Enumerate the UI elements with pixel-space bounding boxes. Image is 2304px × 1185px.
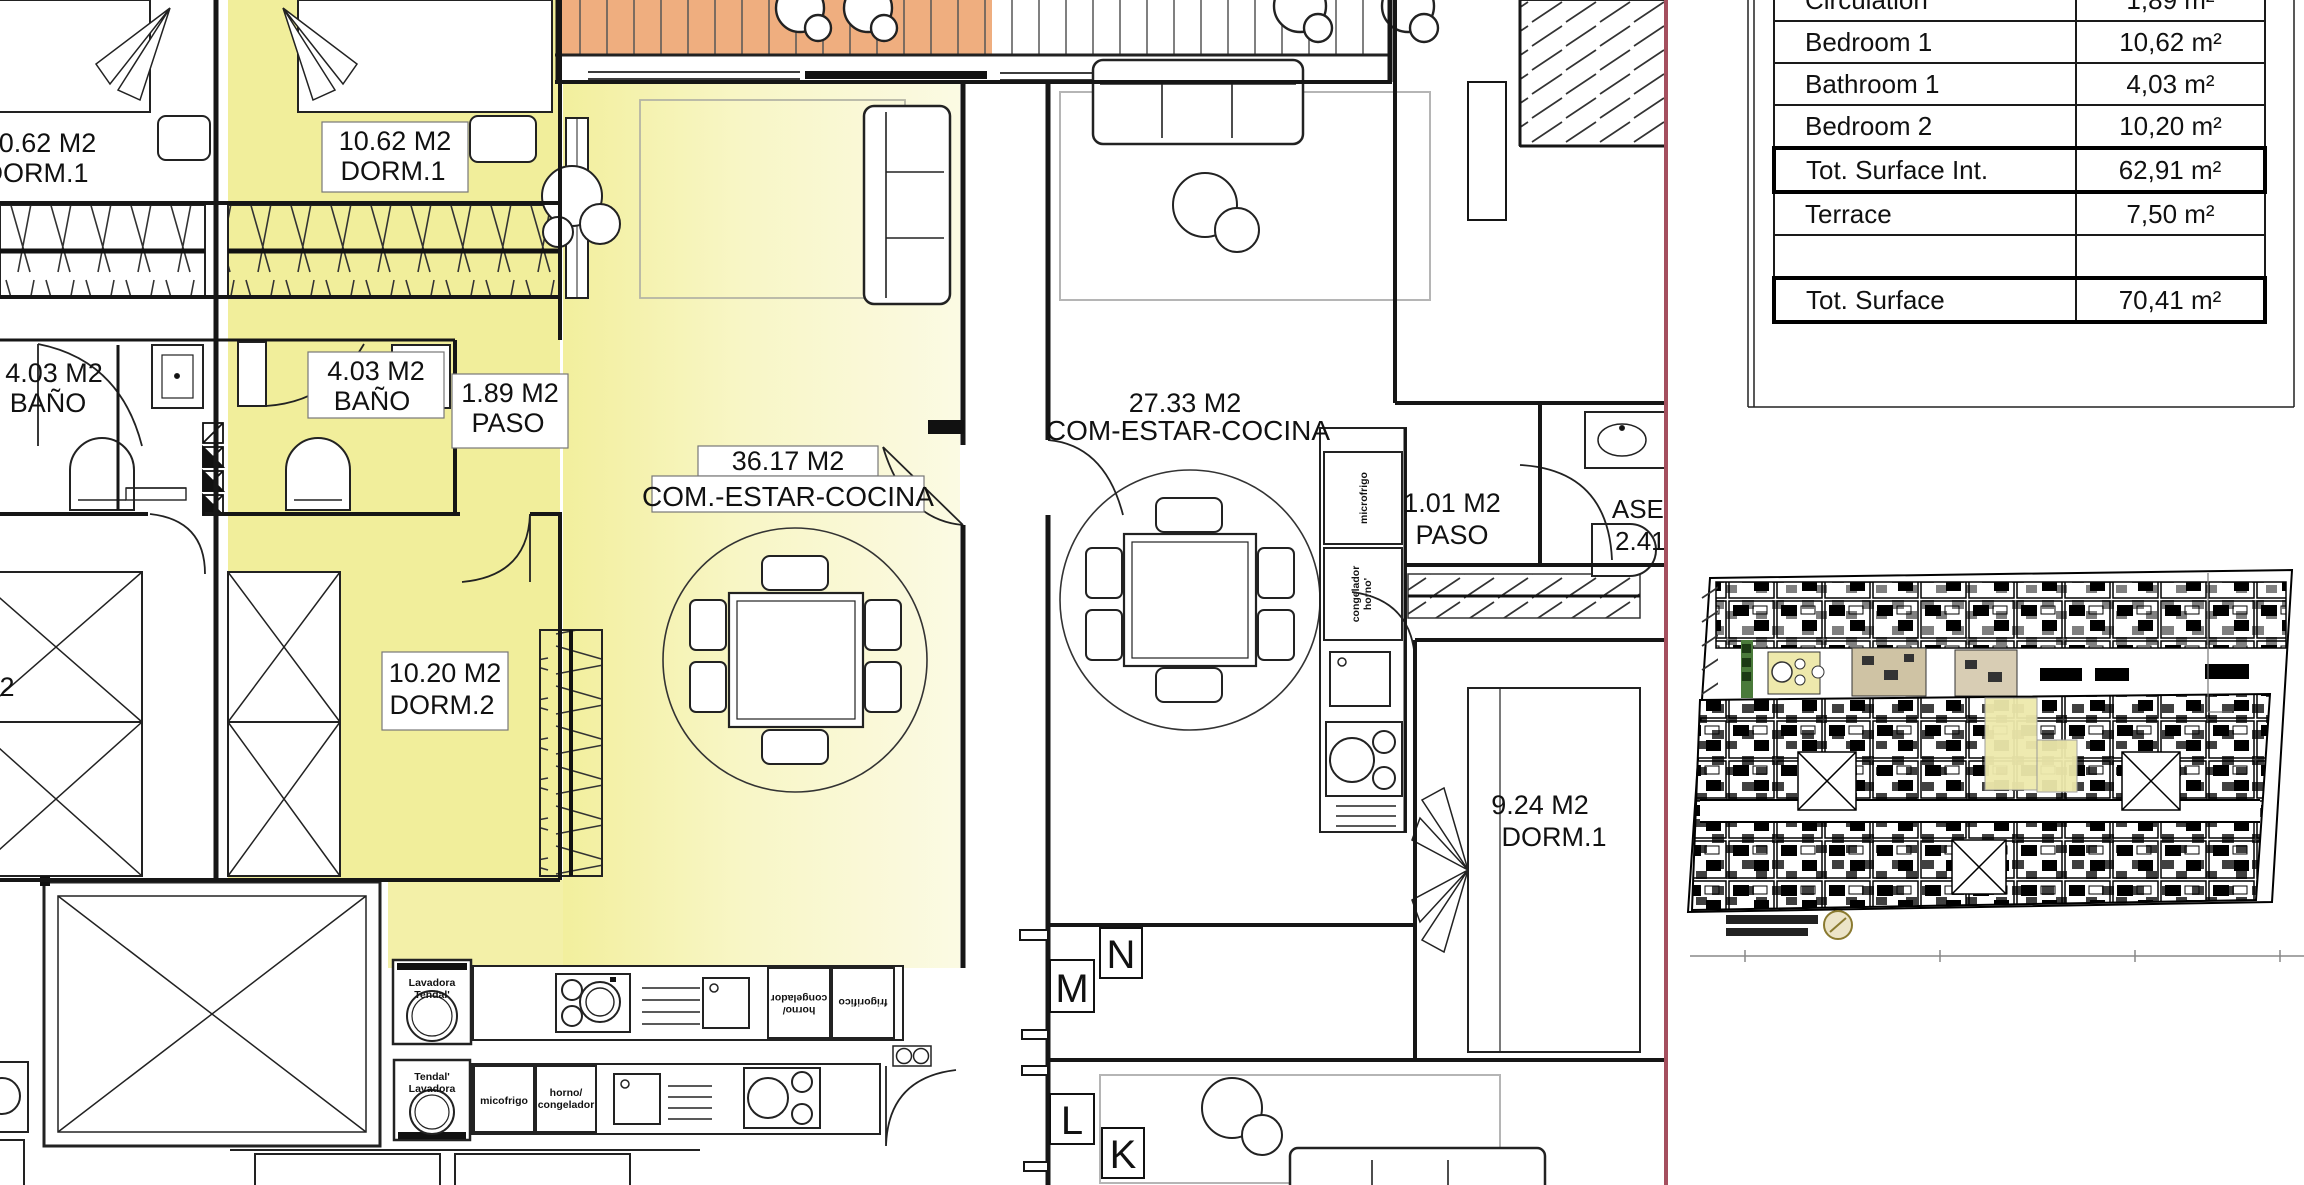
drying-lines-band — [1408, 574, 1640, 618]
area-value-cell: 62,91 m² — [2076, 148, 2265, 192]
dorm2-area: 10.20 M2 — [389, 658, 502, 688]
marker-l: L — [1061, 1099, 1083, 1143]
marker-m: M — [1055, 967, 1088, 1011]
micro-right-label: microfrigo — [1358, 472, 1370, 524]
svg-text:frigorifico: frigorifico — [839, 996, 888, 1008]
right-paso-name: PASO — [1415, 520, 1488, 550]
room-label-cell: Tot. Surface Int. — [1774, 148, 2076, 192]
area-value-cell: 4,03 m² — [2076, 63, 2265, 105]
table-row: Bathroom 1 4,03 m² — [1774, 63, 2265, 105]
left-bath-area: 4.03 M2 — [5, 358, 103, 388]
area-value-cell: 70,41 m² — [2076, 278, 2265, 322]
living-area: 36.17 M2 — [732, 446, 845, 476]
dorm2-name: DORM.2 — [389, 690, 494, 720]
riser-shaft — [203, 423, 223, 515]
aseo-name: ASEO — [1612, 494, 1684, 524]
table-row: Terrace 7,50 m² — [1774, 192, 2265, 235]
keyplan-caption — [1726, 911, 1852, 939]
living-name: COM.-ESTAR-COCINA — [642, 481, 934, 512]
room-label-cell: Bedroom 1 — [1774, 21, 2076, 63]
left-bath-name: BAÑO — [10, 387, 87, 418]
plant — [1202, 1078, 1282, 1155]
right-dorm1-name: DORM.1 — [1501, 822, 1606, 852]
corridor-markers: N M L K — [1050, 928, 1144, 1178]
right-living-area: 27.33 M2 — [1129, 388, 1242, 418]
page-divider-line — [1664, 0, 1668, 1185]
bath-name: BAÑO — [334, 385, 411, 416]
bath-area: 4.03 M2 — [327, 356, 425, 386]
room-label-cell: Circulation — [1774, 0, 2076, 21]
table-row-total: Tot. Surface 70,41 m² — [1774, 278, 2265, 322]
drying-terrace-hatch — [1520, 0, 1666, 146]
table-row: Bedroom 1 10,62 m² — [1774, 21, 2265, 63]
area-value-cell: 7,50 m² — [2076, 192, 2265, 235]
table-row-empty — [1774, 235, 2265, 278]
sofa — [864, 106, 950, 304]
svg-text:Tendal': Tendal' — [414, 1071, 450, 1083]
area-value-cell: 10,20 m² — [2076, 105, 2265, 148]
lower-unit-kitchen — [394, 1060, 956, 1146]
svg-text:horno/: horno/ — [550, 1087, 583, 1099]
right-living-name: COM-ESTAR-COCINA — [1046, 415, 1330, 446]
svg-text:congelador: congelador — [771, 992, 828, 1004]
dining-set — [1060, 470, 1320, 730]
right-paso-area: 1.01 M2 — [1403, 488, 1501, 518]
marker-n: N — [1107, 933, 1136, 977]
table-row: Bedroom 2 10,20 m² — [1774, 105, 2265, 148]
terrace-deck — [555, 0, 1438, 80]
patio-lightwell — [40, 876, 380, 1146]
table-row: Circulation 1,89 m² — [1774, 0, 2265, 21]
right-unit-furniture: microfrigo congelador horno' — [1060, 60, 1666, 1185]
bed-x — [0, 572, 340, 876]
area-value-cell: 10,62 m² — [2076, 21, 2265, 63]
plant — [1173, 173, 1259, 252]
area-table-panel: Circulation 1,89 m² Bedroom 1 10,62 m² B… — [1772, 0, 2267, 324]
sink — [703, 978, 749, 1028]
key-plan-thumbnail — [1688, 570, 2304, 962]
svg-text:microfrigo: microfrigo — [1358, 472, 1370, 524]
sliding-door — [805, 71, 987, 79]
aseo-area: 2.41 M2 — [1615, 526, 1709, 556]
sofa — [1290, 1148, 1545, 1185]
room-label-cell: Tot. Surface — [1774, 278, 2076, 322]
room-label-cell — [1774, 235, 2076, 278]
left-dorm1-name: DORM.1 — [0, 158, 89, 188]
left-dorm1-area: 10.62 M2 — [0, 128, 96, 158]
keyplan-lower-block — [1692, 694, 2270, 910]
dorm1-area: 10.62 M2 — [339, 126, 452, 156]
svg-text:horno/: horno/ — [783, 1004, 816, 1016]
area-value-cell: 1,89 m² — [2076, 0, 2265, 21]
sofa — [1093, 60, 1303, 144]
svg-text:Tendal': Tendal' — [414, 989, 450, 1001]
left-dorm2-name: DORM.2 — [0, 672, 15, 702]
room-label-cell: Terrace — [1774, 192, 2076, 235]
dorm1-name: DORM.1 — [340, 156, 445, 186]
bed — [1412, 688, 1640, 1052]
fridge-label: frigorifico — [839, 996, 888, 1008]
area-table: Circulation 1,89 m² Bedroom 1 10,62 m² B… — [1772, 0, 2267, 324]
washer-label: Lavadora — [409, 977, 456, 989]
floor-plan-sheet: Lavadora Tendal' horno/ congelador frigo… — [0, 0, 2304, 1185]
right-dorm1-area: 9.24 M2 — [1491, 790, 1589, 820]
svg-text:micofrigo: micofrigo — [480, 1095, 528, 1107]
room-label-cell: Bathroom 1 — [1774, 63, 2076, 105]
washing-machine: Lavadora Tendal' — [393, 960, 471, 1044]
area-value-cell — [2076, 235, 2265, 278]
kitchen-counter — [473, 966, 931, 1066]
room-label-cell: Bedroom 2 — [1774, 105, 2076, 148]
svg-text:Lavadora: Lavadora — [409, 1083, 456, 1095]
paso-area: 1.89 M2 — [461, 378, 559, 408]
keyplan-scale-line — [1690, 950, 2304, 962]
table-row-total-int: Tot. Surface Int. 62,91 m² — [1774, 148, 2265, 192]
marker-k: K — [1110, 1133, 1137, 1177]
svg-text:congelador: congelador — [538, 1099, 595, 1111]
paso-name: PASO — [471, 408, 544, 438]
